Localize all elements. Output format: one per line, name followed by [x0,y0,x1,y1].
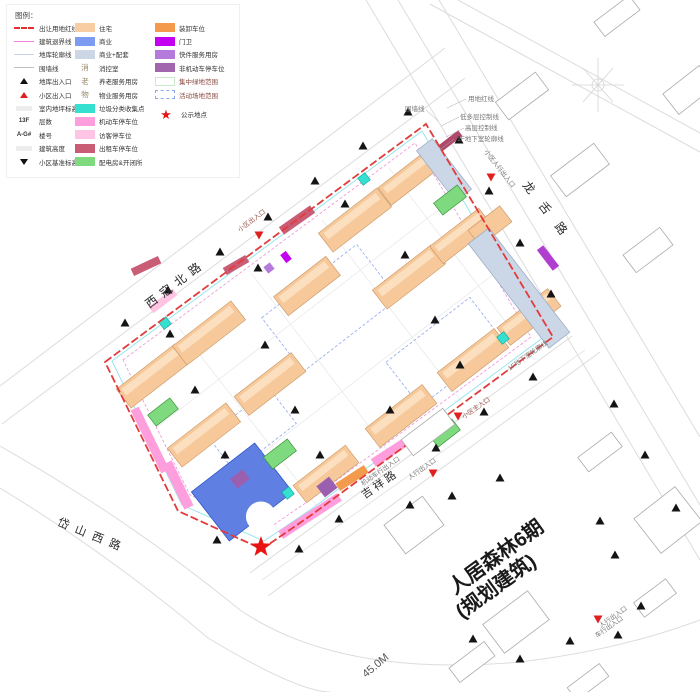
legend-item: 商业 [75,34,153,47]
legend-item: 出租车停车位 [75,142,153,155]
gate-swatch [155,37,175,46]
residential-buildings [116,149,561,503]
loading-bay-swatch [155,23,175,32]
legend-column-lines: 出让用地红线 建筑退界线 地库轮廓线 围墙线 地库出入口 小区出入口 室内地坪标… [13,21,73,168]
activity-area-swatch [155,90,175,99]
callout-ped-entry-s: 人行出入口 [406,456,438,482]
wall-line-icon [13,67,35,68]
callout-main-entry: 小区主入口 [460,395,492,421]
legend-item: 快件服务用房 [155,48,237,61]
courier-room-swatch [155,50,175,59]
bike-parking-swatch [155,63,175,72]
waste-swatch [75,104,95,113]
datum-mark-icon [13,159,35,165]
legend-item: A-G#楼号 [13,128,73,141]
star-icon: ★ [155,108,177,121]
site-plan-page: 西寇北路 龙舌路 岱山西路 吉祥路 人居森林6期 (规划建筑) 围墙线 用地红线… [0,0,700,692]
basement-line-icon [13,54,35,55]
callout-low-rise: 低多层控制线 [460,112,500,121]
callout-boundary: 用地红线 [468,94,495,103]
legend-column-misc: 装卸车位 门卫 快件服务用房 非机动车停车位 集中绿地范围 活动场地范围 ★公示… [155,21,237,121]
legend-item: 住宅 [75,21,153,34]
fire-control-symbol: 消 [75,62,95,73]
legend-item: 配电房&开闭所 [75,155,153,168]
legend-item: 地库轮廓线 [13,48,73,61]
legend-item: 活动场地范围 [155,88,237,101]
scale-label: 45.0M [360,651,391,680]
legend-item: 访客停车位 [75,128,153,141]
callout-ped-entry-ne: 小区人行出入口 [482,148,517,189]
building-height-icon [13,146,35,151]
road-label-daishan: 岱山西路 [56,515,130,556]
compass-icon [572,58,624,112]
elderly-care-symbol: 老 [75,76,95,87]
legend-item: 建筑退界线 [13,34,73,47]
green-area-swatch [155,77,175,86]
floor-count-icon: 13F [13,118,35,124]
legend-title: 图例： [15,10,38,21]
legend-item: 门卫 [155,34,237,47]
callout-wall: 围墙线 [405,104,425,113]
residential-swatch [75,23,95,32]
red-triangle-icon [13,92,35,98]
legend-item: 建筑高度 [13,142,73,155]
legend-item: 室内地坪标高 [13,101,73,114]
road-name-labels: 西寇北路 龙舌路 岱山西路 吉祥路 [56,178,580,556]
red-dash-line-icon [13,27,35,29]
commercial-support-swatch [75,50,95,59]
setback-line-icon [13,41,35,42]
taxi-parking-swatch [75,144,95,153]
car-parking-swatch [75,117,95,126]
power-room-swatch [75,157,95,166]
commercial-swatch [75,37,95,46]
legend-item: 消消控室 [75,61,153,74]
legend-item: 老养老服务用房 [75,75,153,88]
legend-item: 非机动车停车位 [155,61,237,74]
public-notice-star [251,536,272,556]
legend-item: ★公示地点 [155,107,237,120]
callout-high-rise: 高层控制线 [465,123,498,132]
legend-item: 物物业服务用房 [75,88,153,101]
black-triangle-icon [13,78,35,84]
legend-item: 机动车停车位 [75,115,153,128]
legend-item: 13F层数 [13,115,73,128]
property-service-symbol: 物 [75,89,95,100]
building-number-icon: A-G# [13,132,35,138]
visitor-parking-swatch [75,130,95,139]
legend-item: 商业+配套 [75,48,153,61]
elevation-mark-icon [13,106,35,111]
legend-item: 出让用地红线 [13,21,73,34]
legend-item: 围墙线 [13,61,73,74]
legend-panel: 图例： 出让用地红线 建筑退界线 地库轮廓线 围墙线 地库出入口 小区出入口 室… [6,4,240,178]
legend-item: 小区出入口 [13,88,73,101]
legend-column-uses: 住宅 商业 商业+配套 消消控室 老养老服务用房 物物业服务用房 垃圾分类收集点… [75,21,153,168]
legend-item: 装卸车位 [155,21,237,34]
legend-item: 集中绿地范围 [155,75,237,88]
legend-item: 小区基准标高 [13,155,73,168]
legend-item: 地库出入口 [13,75,73,88]
callout-basement: -1F地下室轮廓线 [455,134,504,143]
legend-item: 垃圾分类收集点 [75,101,153,114]
